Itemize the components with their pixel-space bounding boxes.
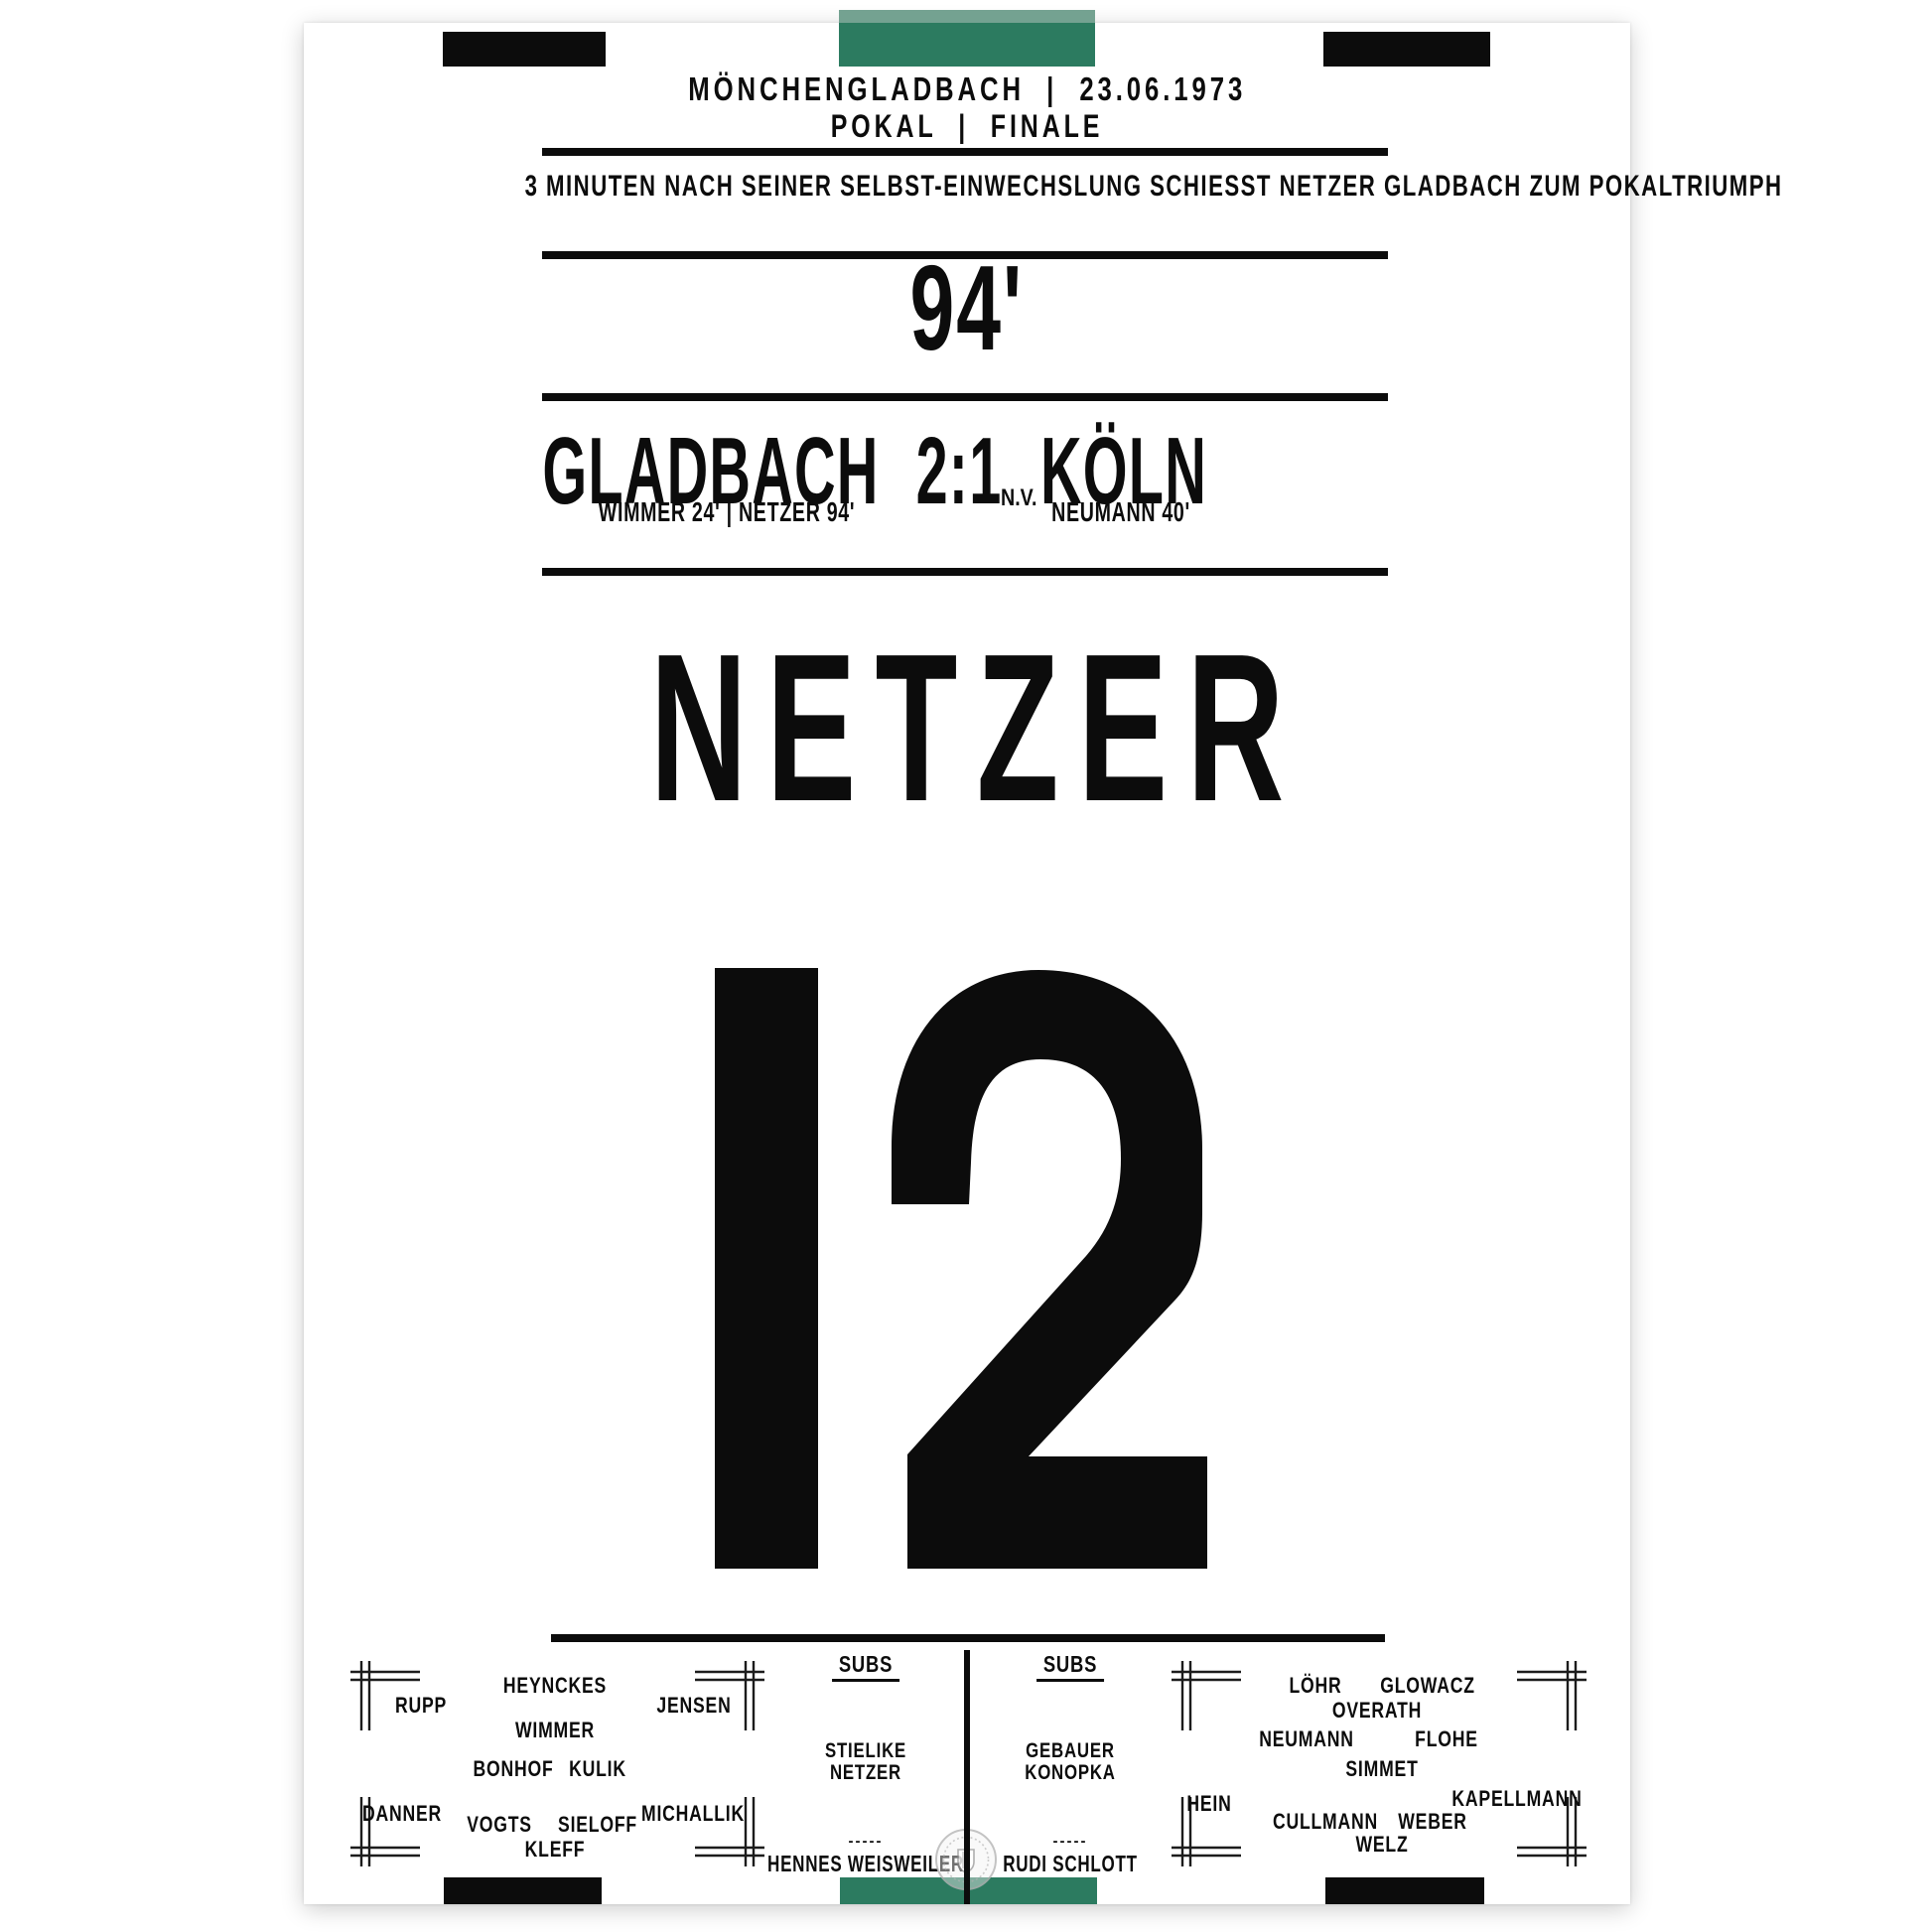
player-name: JENSEN (656, 1695, 731, 1717)
player-name: VOGTS (467, 1814, 532, 1836)
home-sub-1: STIELIKE (825, 1740, 906, 1762)
bottom-black-bar-right (1325, 1877, 1484, 1904)
header-divider-2: | (958, 108, 969, 144)
away-subs-names: GEBAUER KONOPKA (1025, 1740, 1115, 1784)
digit-1 (715, 968, 818, 1569)
away-subs-label: SUBS (1036, 1653, 1104, 1682)
home-scorers: WIMMER 24' | NETZER 94' (543, 498, 909, 526)
player-name: SIMMET (1345, 1758, 1418, 1780)
poster-card: MÖNCHENGLADBACH | 23.06.1973 POKAL | FIN… (304, 23, 1630, 1904)
top-black-bar-left (443, 32, 606, 67)
player-name: KLEFF (525, 1839, 586, 1861)
away-sub-1: GEBAUER (1025, 1740, 1115, 1762)
top-green-bar (839, 10, 1095, 67)
player-name: WELZ (1355, 1834, 1408, 1856)
match-location-date: MÖNCHENGLADBACH | 23.06.1973 (304, 72, 1630, 105)
match-location: MÖNCHENGLADBACH (688, 70, 1025, 107)
home-subs-names: STIELIKE NETZER (825, 1740, 906, 1784)
player-name: FLOHE (1415, 1728, 1478, 1750)
top-black-bar-right (1323, 32, 1490, 67)
header-divider: | (1046, 70, 1057, 107)
away-manager-name: RUDI SCHLOTT (1003, 1853, 1138, 1875)
player-name: HEYNCKES (503, 1675, 607, 1697)
home-subs-label: SUBS (832, 1653, 899, 1682)
digit-2 (892, 970, 1207, 1569)
subtitle: 3 MINUTEN NACH SEINER SELBST-EINWECHSLUN… (304, 172, 1630, 202)
away-scorers: NEUMANN 40' (1022, 498, 1220, 526)
pitch-corner-mark (1172, 1661, 1241, 1730)
player-name: NEUMANN (1259, 1728, 1354, 1750)
home-manager-dashes: ----- (849, 1834, 884, 1849)
pitch-corner-mark (1517, 1661, 1587, 1730)
player-name: GLOWACZ (1380, 1675, 1475, 1697)
player-name: SIELOFF (558, 1814, 637, 1836)
player-name: MICHALLIK (641, 1803, 745, 1825)
player-name: BONHOF (473, 1758, 553, 1780)
player-name: DANNER (362, 1803, 442, 1825)
player-name: HEIN (1186, 1793, 1231, 1815)
divider-rule-3 (542, 393, 1388, 401)
player-name: RUPP (395, 1695, 447, 1717)
goal-minute: 94' (304, 247, 1630, 368)
match-date: 23.06.1973 (1079, 70, 1246, 107)
pitch-top-line (551, 1634, 1385, 1642)
hero-jersey-number (715, 968, 1207, 1569)
player-name: WIMMER (515, 1720, 595, 1741)
divider-rule-1 (542, 148, 1388, 156)
pitch-halfway-line (964, 1650, 970, 1904)
competition-stage: POKAL | FINALE (304, 110, 1630, 142)
player-name: OVERATH (1332, 1700, 1422, 1722)
bottom-black-bar-left (444, 1877, 602, 1904)
competition: POKAL (831, 108, 937, 144)
stage: FINALE (991, 108, 1104, 144)
home-sub-2: NETZER (825, 1762, 906, 1784)
player-name: CULLMANN (1273, 1811, 1378, 1833)
divider-rule-4 (542, 568, 1388, 576)
away-manager-dashes: ----- (1053, 1834, 1088, 1849)
player-name: LÖHR (1289, 1675, 1341, 1697)
hero-player-name: NETZER (304, 622, 1630, 833)
player-name: WEBER (1398, 1811, 1467, 1833)
player-name: KAPELLMANN (1451, 1788, 1582, 1810)
player-name: KULIK (569, 1758, 626, 1780)
away-sub-2: KONOPKA (1025, 1762, 1115, 1784)
